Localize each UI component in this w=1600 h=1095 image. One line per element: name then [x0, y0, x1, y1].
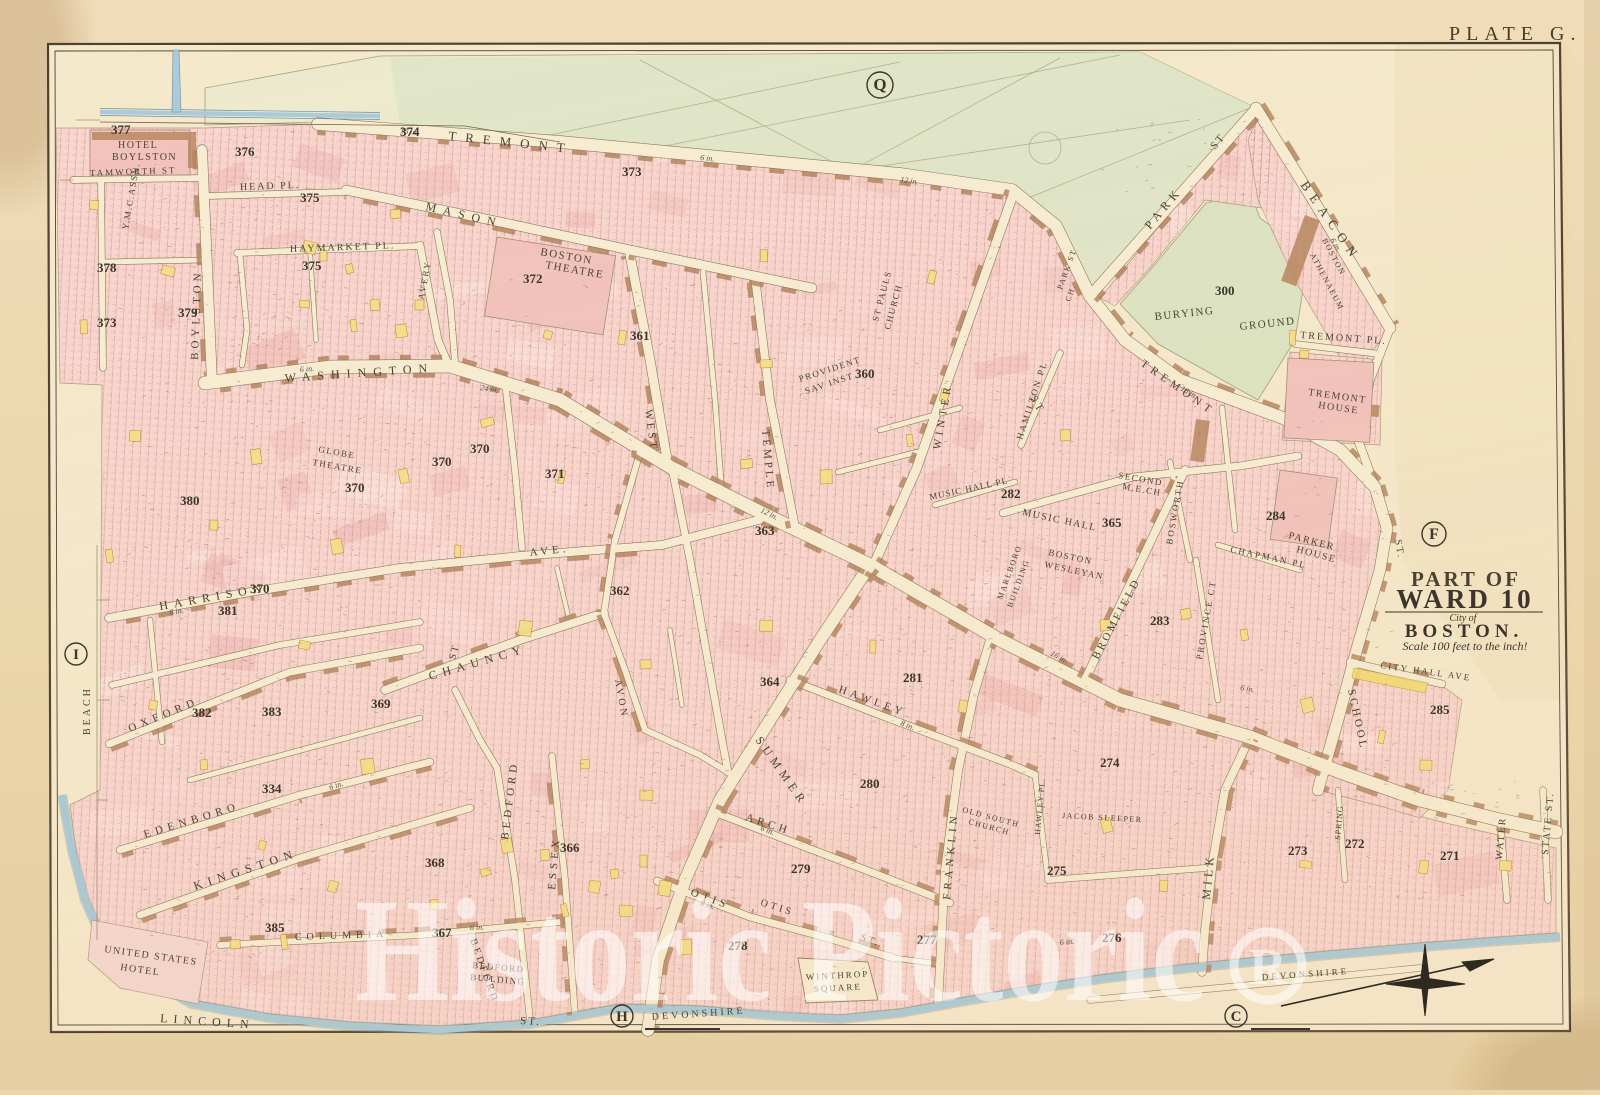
svg-text:285: 285 — [1430, 702, 1450, 717]
svg-text:385: 385 — [265, 920, 285, 935]
svg-text:Q: Q — [873, 75, 886, 94]
svg-text:281: 281 — [903, 670, 923, 685]
svg-text:334: 334 — [262, 781, 282, 796]
svg-text:HOTEL: HOTEL — [118, 140, 158, 151]
svg-text:364: 364 — [760, 674, 780, 689]
svg-text:272: 272 — [1345, 836, 1365, 851]
svg-text:365: 365 — [1102, 515, 1122, 530]
svg-text:282: 282 — [1001, 486, 1021, 501]
svg-text:300: 300 — [1215, 283, 1235, 298]
svg-text:273: 273 — [1288, 843, 1308, 858]
svg-text:363: 363 — [755, 523, 775, 538]
svg-text:6 in.: 6 in. — [700, 153, 715, 163]
svg-text:HEAD PL.: HEAD PL. — [240, 180, 301, 193]
svg-text:280: 280 — [860, 776, 880, 791]
svg-text:380: 380 — [180, 493, 200, 508]
svg-text:369: 369 — [371, 696, 391, 711]
svg-text:BOYLSTON: BOYLSTON — [112, 152, 177, 163]
svg-text:WARD 10: WARD 10 — [1396, 584, 1533, 614]
svg-text:Scale 100 feet to the inch!: Scale 100 feet to the inch! — [1403, 639, 1528, 653]
svg-text:271: 271 — [1440, 848, 1460, 863]
svg-text:375: 375 — [300, 190, 320, 205]
svg-text:283: 283 — [1150, 613, 1170, 628]
svg-text:370: 370 — [432, 454, 452, 469]
svg-text:I: I — [73, 647, 79, 663]
svg-text:C: C — [1231, 1009, 1242, 1025]
svg-text:382: 382 — [192, 705, 212, 720]
svg-text:371: 371 — [545, 466, 565, 481]
svg-text:PLATE G.: PLATE G. — [1449, 23, 1581, 45]
svg-text:376: 376 — [235, 144, 255, 159]
svg-text:378: 378 — [97, 260, 117, 275]
svg-text:370: 370 — [345, 480, 365, 495]
svg-text:368: 368 — [425, 855, 445, 870]
svg-text:372: 372 — [523, 271, 543, 286]
svg-text:375: 375 — [302, 258, 322, 273]
svg-text:284: 284 — [1266, 508, 1286, 523]
svg-text:370: 370 — [470, 441, 490, 456]
svg-text:R: R — [1249, 939, 1288, 996]
svg-text:361: 361 — [630, 328, 650, 343]
svg-text:274: 274 — [1100, 755, 1120, 770]
svg-text:360: 360 — [855, 366, 875, 381]
svg-text:6 in.: 6 in. — [300, 364, 315, 374]
svg-text:383: 383 — [262, 704, 282, 719]
svg-text:377: 377 — [111, 122, 131, 137]
svg-text:F: F — [1429, 526, 1439, 543]
svg-text:373: 373 — [622, 164, 642, 179]
svg-text:Historic Pictoric: Historic Pictoric — [355, 869, 1205, 1033]
svg-text:366: 366 — [560, 840, 580, 855]
svg-text:373: 373 — [97, 315, 117, 330]
svg-text:381: 381 — [218, 603, 238, 618]
svg-text:BEACH: BEACH — [82, 686, 93, 735]
svg-text:379: 379 — [178, 305, 198, 320]
svg-text:362: 362 — [610, 583, 630, 598]
